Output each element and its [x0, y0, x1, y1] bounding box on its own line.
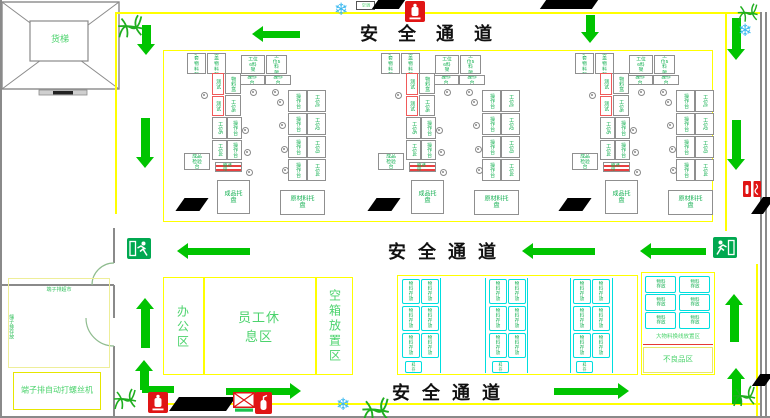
- cell-box: 操作台: [265, 75, 291, 85]
- flow-arrow-right-icon: [554, 383, 629, 399]
- cell-box: 护套物料架: [575, 53, 594, 74]
- operator-chair-icon: [277, 99, 284, 106]
- cell-box: 成品托盘: [411, 180, 444, 214]
- operator-chair-icon: [670, 167, 677, 174]
- operator-chair-icon: [246, 169, 253, 176]
- defective-area: 不良品区: [643, 347, 713, 373]
- cell-box: 操作台: [433, 75, 459, 85]
- storage-box: 物料存放: [421, 306, 439, 331]
- freight-elevator: [1, 1, 120, 96]
- storage-box: 物料存放: [592, 306, 610, 331]
- operator-chair-icon: [242, 127, 249, 134]
- operator-chair-icon: [632, 149, 639, 156]
- screw-machine-label: 端子排自动打螺丝机: [21, 387, 93, 396]
- operator-chair-icon: [665, 99, 672, 106]
- storage-box: 物料存放: [402, 306, 420, 331]
- wall-right-inner: [765, 12, 767, 416]
- flow-arrow-up-icon: [725, 294, 744, 342]
- operator-chair-icon: [476, 167, 483, 174]
- operator-chair-icon: [282, 167, 289, 174]
- cell-box: 工位5: [600, 117, 615, 139]
- office-divider-1: [203, 278, 205, 374]
- flow-arrow-left-icon: [522, 243, 595, 259]
- pillar: [169, 397, 236, 411]
- cell-box: 操作台: [482, 113, 501, 135]
- cell-box: 工位6: [225, 95, 241, 116]
- flow-arrow-up-icon: [136, 298, 155, 348]
- operator-chair-icon: [589, 92, 596, 99]
- cell-box: 工位2: [501, 113, 520, 135]
- storage-box: 物料存放: [402, 279, 420, 304]
- freight-elevator-label-box: 货梯: [31, 33, 89, 47]
- operator-chair-icon: [395, 92, 402, 99]
- storage-box: 物料存放: [573, 333, 591, 358]
- plant-icon: [116, 12, 145, 46]
- exit-sign-icon: [127, 238, 151, 264]
- wall-extinguisher-icon: [743, 181, 762, 203]
- cell-box: 工位3: [695, 136, 714, 158]
- cell-box: 操作台: [421, 140, 436, 160]
- office-divider-2: [315, 278, 317, 374]
- operator-chair-icon: [281, 146, 288, 153]
- storage-box: 物料存放: [489, 306, 507, 331]
- storage-box: 物料存放: [508, 306, 526, 331]
- exit-sign-icon: [713, 237, 737, 263]
- cell-box: 操作台: [227, 117, 242, 139]
- cell-box: 操作台: [615, 117, 630, 139]
- cell-box: 原材料托盘: [474, 190, 519, 215]
- empty-box-area-label: 空箱放置区: [327, 289, 344, 364]
- large-material-area: 大物料换线放置区: [643, 330, 713, 343]
- operator-chair-icon: [250, 89, 257, 96]
- cell-box: 操作台: [288, 159, 307, 181]
- plant-icon: [360, 394, 391, 418]
- storage-box: 物料存放: [489, 333, 507, 358]
- cell-box: 工位1: [695, 90, 714, 112]
- cell-box: 工位4: [600, 140, 615, 160]
- storage-box: 物料存放: [508, 279, 526, 304]
- operator-chair-icon: [634, 169, 641, 176]
- storage-box: 物料存放: [573, 306, 591, 331]
- storage-box: 物料存放: [573, 279, 591, 304]
- ac-unit-label: 空调: [361, 3, 369, 8]
- cell-box: 物料盒: [613, 73, 629, 94]
- cell-box: 操作台: [288, 136, 307, 158]
- large-material-area-label: 大物料换线放置区: [656, 333, 700, 339]
- storage-box: 物料存放: [592, 279, 610, 304]
- fire-extinguisher-icon: [255, 392, 272, 418]
- cell-box: 原材料托盘: [280, 190, 325, 215]
- cell-box: 测试: [406, 96, 418, 116]
- storage-box: 物料存放: [645, 294, 676, 311]
- cell-box: 操作台: [288, 113, 307, 135]
- operator-chair-icon: [440, 169, 447, 176]
- terminal-storage: 端子排存放: [4, 298, 17, 354]
- cell-box: 工位4: [212, 140, 227, 160]
- flow-arrow-down-icon: [727, 120, 746, 170]
- storage-lane-line: [485, 278, 486, 373]
- cell-box: 成品托盘: [605, 180, 638, 214]
- operator-chair-icon: [279, 122, 286, 129]
- cell-box: 工位2: [307, 113, 326, 135]
- cell-box: 测试: [212, 96, 224, 116]
- staff-rest-area-label: 员工休息区: [236, 309, 282, 347]
- cell-box: 操作台: [459, 75, 485, 85]
- cell-box: 操作台: [676, 136, 695, 158]
- cell-box: 上盖物料架: [595, 53, 614, 74]
- storage-box: 物料存放: [645, 312, 676, 329]
- cell-box: 测试: [600, 73, 612, 95]
- conveyor-belt: 输送带: [215, 162, 242, 172]
- operator-chair-icon: [436, 127, 443, 134]
- cell-box: 工位5料架: [460, 55, 481, 74]
- cell-box: 工位6: [419, 95, 435, 116]
- snowflake-icon: ❄: [334, 1, 348, 18]
- cell-box: 护套物料架: [187, 53, 206, 74]
- storage-lane-line: [570, 278, 571, 373]
- factory-floor-plan-canvas: 货梯 办公区 员工休息区 空箱放置区 大物料换线放置区 不良品区 端子排超市 端…: [0, 0, 770, 418]
- operator-chair-icon: [201, 92, 208, 99]
- cell-box: 成品托盘: [217, 180, 250, 214]
- conveyor-belt: 输送带: [409, 162, 436, 172]
- cell-box: 操作台: [482, 136, 501, 158]
- plant-icon: [736, 1, 759, 29]
- boundary-top: [115, 12, 760, 14]
- flow-arrow-down-icon: [581, 15, 600, 43]
- cell-box: 操作台: [421, 117, 436, 139]
- storage-box: 物料存放: [421, 333, 439, 358]
- storage-box: 物料存放: [592, 333, 610, 358]
- cell-box: 护套物料架: [381, 53, 400, 74]
- operator-chair-icon: [638, 89, 645, 96]
- cell-box: 工位5: [212, 117, 227, 139]
- storage-box: 物料存放: [421, 279, 439, 304]
- staff-rest-area: 员工休息区: [232, 308, 286, 348]
- snowflake-icon: ❄: [336, 396, 350, 413]
- operator-chair-icon: [473, 122, 480, 129]
- cell-box: 操作台: [676, 159, 695, 181]
- wall-right-outer: [760, 12, 762, 416]
- storage-lane-line: [612, 278, 613, 373]
- cell-box: 工位5: [406, 117, 421, 139]
- storage-box: 物料存放: [489, 279, 507, 304]
- flow-arrow-left-icon: [177, 243, 250, 259]
- cell-box: 操作台: [676, 90, 695, 112]
- cell-box: 工位3: [307, 136, 326, 158]
- flow-arrow-down-icon: [136, 118, 155, 168]
- zone-divider-red: [643, 344, 713, 346]
- plant-icon: [731, 383, 757, 414]
- operator-chair-icon: [438, 149, 445, 156]
- storage-box: 物料存放: [679, 294, 710, 311]
- cell-box: 工位3: [501, 136, 520, 158]
- cell-box: 工位5料架: [266, 55, 287, 74]
- storage-box: 物料存放: [679, 276, 710, 293]
- cell-box: 测试: [212, 73, 224, 95]
- cell-box: 操作台: [288, 90, 307, 112]
- cell-box: 工位6料架: [241, 55, 265, 74]
- cell-box: 工位6: [613, 95, 629, 116]
- cell-box: 工位1: [501, 90, 520, 112]
- cell-box: 成品检验台: [572, 153, 598, 170]
- cell-box: 测试: [600, 96, 612, 116]
- cell-box: 上盖物料架: [401, 53, 420, 74]
- fire-hydrant-icon: [405, 1, 425, 27]
- cell-box: 工位1: [307, 90, 326, 112]
- terminal-supermarket-label: 端子排超市: [43, 287, 76, 293]
- office-area-label: 办公区: [175, 305, 192, 350]
- cell-box: 工位6料架: [435, 55, 459, 74]
- storage-lane-line: [527, 278, 528, 373]
- first-aid-box-icon: [233, 392, 255, 418]
- cell-box: 操作台: [627, 75, 653, 85]
- pillar: [540, 0, 598, 9]
- terminal-storage-label: 端子排存放: [8, 300, 14, 353]
- cell-box: 操作台: [239, 75, 265, 85]
- cell-box: 测试: [406, 73, 418, 95]
- operator-chair-icon: [471, 99, 478, 106]
- storage-box-small: 物料存放: [576, 361, 593, 373]
- storage-box-small: 物料存放: [405, 361, 422, 373]
- storage-box: 物料存放: [508, 333, 526, 358]
- operator-chair-icon: [630, 127, 637, 134]
- safety-channel-middle: 安全通道: [388, 238, 508, 264]
- cell-box: 操作台: [653, 75, 679, 85]
- operator-chair-icon: [466, 89, 473, 96]
- cell-box: 操作台: [676, 113, 695, 135]
- cell-box: 物料盒: [419, 73, 435, 94]
- fire-hydrant-icon: [148, 392, 168, 418]
- cell-box: 上盖物料架: [207, 53, 226, 74]
- storage-lane-line: [440, 278, 441, 373]
- cell-box: 操作台: [227, 140, 242, 160]
- cell-box: 工位4: [695, 159, 714, 181]
- storage-box: 物料存放: [679, 312, 710, 329]
- cell-box: 操作台: [482, 159, 501, 181]
- cell-box: 操作台: [615, 140, 630, 160]
- cell-box: 原材料托盘: [668, 190, 713, 215]
- screw-machine: 端子排自动打螺丝机: [13, 372, 101, 410]
- cell-box: 操作台: [482, 90, 501, 112]
- terminal-supermarket: 端子排超市: [26, 284, 92, 295]
- storage-box: 物料存放: [645, 276, 676, 293]
- cell-box: 工位4: [501, 159, 520, 181]
- freight-elevator-label: 货梯: [47, 35, 74, 45]
- cell-box: 工位4: [406, 140, 421, 160]
- operator-chair-icon: [272, 89, 279, 96]
- safety-channel-top: 安全通道: [360, 20, 512, 46]
- storage-box-small: 物料存放: [492, 361, 509, 373]
- operator-chair-icon: [475, 146, 482, 153]
- cell-box: 成品检验台: [378, 153, 404, 170]
- cell-box: 工位2: [695, 113, 714, 135]
- defective-area-label: 不良品区: [656, 356, 701, 364]
- office-area: 办公区: [169, 296, 197, 358]
- empty-box-area: 空箱放置区: [320, 288, 350, 364]
- conveyor-belt: 输送带: [603, 162, 630, 172]
- pillar: [372, 0, 405, 9]
- cell-box: 成品检验台: [184, 153, 210, 170]
- operator-chair-icon: [444, 89, 451, 96]
- cell-box: 工位5料架: [654, 55, 675, 74]
- safety-channel-bottom: 安全通道: [392, 379, 512, 405]
- cell-box: 工位6料架: [629, 55, 653, 74]
- cell-box: 物料盒: [225, 73, 241, 94]
- operator-chair-icon: [669, 146, 676, 153]
- plant-icon: [112, 386, 138, 417]
- flow-arrow-left-icon: [252, 26, 300, 42]
- operator-chair-icon: [660, 89, 667, 96]
- cell-box: 工位4: [307, 159, 326, 181]
- operator-chair-icon: [244, 149, 251, 156]
- storage-box: 物料存放: [402, 333, 420, 358]
- flow-arrow-left-icon: [640, 243, 706, 259]
- operator-chair-icon: [667, 122, 674, 129]
